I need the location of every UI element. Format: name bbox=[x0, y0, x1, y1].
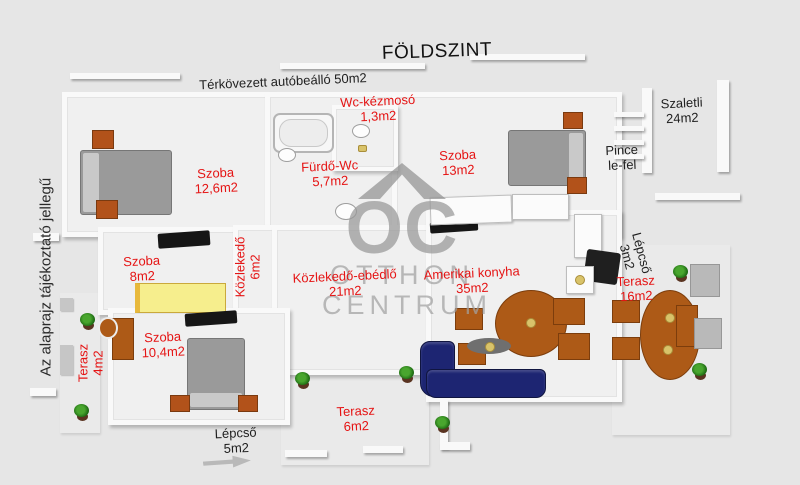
kitchen-counter bbox=[430, 195, 513, 226]
rug bbox=[467, 338, 511, 354]
potted-plant-icon bbox=[294, 372, 312, 390]
szaletli-wall-right bbox=[717, 80, 729, 172]
rug-decor bbox=[485, 342, 495, 352]
table-decor bbox=[526, 318, 536, 328]
terrace-chair bbox=[612, 337, 640, 360]
room-label-bedroom2: Szoba13m2 bbox=[439, 148, 477, 179]
page-title: FÖLDSZINT bbox=[382, 39, 493, 65]
room-label-bedroom1: Szoba12,6m2 bbox=[194, 166, 239, 197]
potted-plant-icon bbox=[672, 265, 690, 283]
wall-segment bbox=[363, 446, 403, 453]
room-label-bedroom4: Szoba10,4m2 bbox=[141, 330, 186, 361]
bed-yellow bbox=[135, 283, 226, 313]
potted-plant-icon bbox=[73, 404, 91, 422]
pillow bbox=[569, 133, 583, 183]
corner-sofa bbox=[426, 369, 546, 398]
table-decor bbox=[663, 345, 673, 355]
room-label-terrace-left: Terasz4m2 bbox=[76, 344, 105, 382]
room-label-terrace-right: Terasz16m2 bbox=[616, 274, 656, 305]
cellar-stair-step bbox=[614, 126, 644, 131]
dining-chair bbox=[553, 298, 585, 325]
room-label-wc: Wc-kézmosó1,3m2 bbox=[340, 93, 416, 125]
side-table bbox=[566, 266, 594, 294]
bathtub bbox=[273, 113, 334, 153]
washbasin bbox=[278, 148, 296, 162]
small-round-table bbox=[98, 317, 118, 339]
room-label-dining: Közlekedő-ebédlő21m2 bbox=[292, 267, 397, 301]
wall-segment bbox=[30, 388, 56, 396]
terrace-bench bbox=[690, 264, 720, 297]
room-label-terrace-bottom: Terasz6m2 bbox=[336, 404, 376, 435]
pillow bbox=[190, 393, 242, 407]
potted-plant-icon bbox=[398, 366, 416, 384]
table-decor bbox=[665, 313, 675, 323]
room-label-carport: Térkövezett autóbeálló 50m2 bbox=[199, 71, 367, 93]
kitchen-counter bbox=[512, 194, 569, 220]
dining-chair bbox=[558, 333, 590, 360]
nightstand bbox=[92, 130, 114, 149]
room-label-hallway: Közlekedő6m2 bbox=[233, 237, 262, 298]
room-label-szaletli: Szaletli24m2 bbox=[660, 96, 703, 127]
terrace-step bbox=[60, 345, 73, 375]
szaletli-wall-bottom bbox=[655, 193, 740, 200]
terrace-step bbox=[60, 298, 73, 311]
wall-segment bbox=[70, 73, 180, 79]
dining-chair bbox=[455, 308, 483, 330]
table-decor bbox=[575, 275, 585, 285]
potted-plant-icon bbox=[434, 416, 452, 434]
potted-plant-icon bbox=[79, 313, 97, 331]
disclaimer-note: Az alaprajz tájékoztató jellegű bbox=[38, 178, 55, 376]
floor-plan-page: OC OTTHON CENTRUM FÖLDSZINT Az alaprajz … bbox=[0, 0, 800, 485]
room-label-bedroom3: Szoba8m2 bbox=[123, 254, 161, 285]
room-label-stairs-main: Lépcső5m2 bbox=[214, 426, 257, 457]
nightstand bbox=[170, 395, 190, 412]
hand-basin bbox=[358, 145, 367, 152]
nightstand bbox=[238, 395, 258, 412]
room-label-cellar: Pincele-fel bbox=[605, 143, 639, 173]
nightstand bbox=[96, 200, 118, 219]
toilet bbox=[352, 124, 370, 138]
nightstand bbox=[567, 177, 587, 194]
nightstand bbox=[563, 112, 583, 129]
double-bed bbox=[80, 150, 172, 215]
room-label-bathroom: Fürdő-Wc5,7m2 bbox=[301, 158, 359, 190]
potted-plant-icon bbox=[691, 363, 709, 381]
room-label-kitchen: Amerikai konyha35m2 bbox=[423, 264, 520, 297]
double-bed bbox=[187, 338, 245, 410]
wall-segment bbox=[285, 450, 327, 457]
cellar-stair-step bbox=[614, 112, 644, 117]
terrace-bench bbox=[694, 318, 722, 349]
toilet bbox=[335, 203, 357, 220]
wall-segment bbox=[440, 442, 470, 450]
